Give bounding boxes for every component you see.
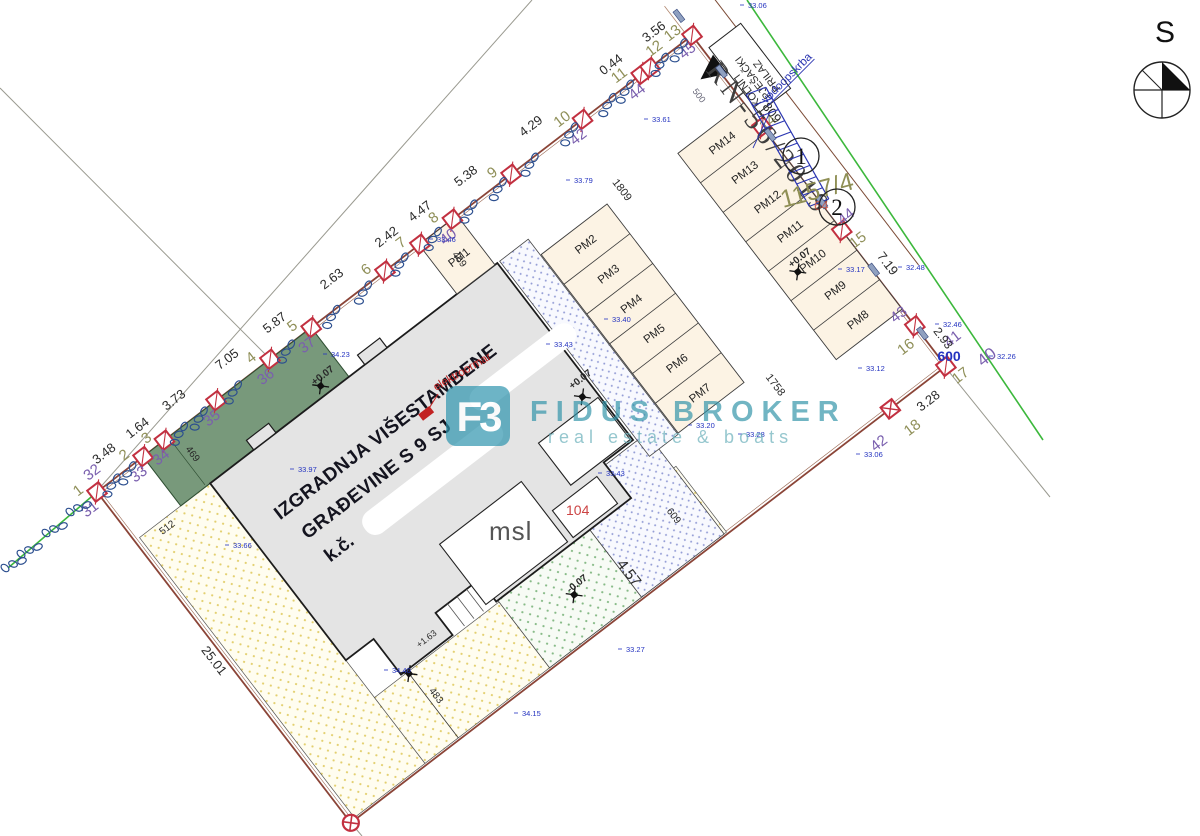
- dimension-label: 2.63: [317, 265, 346, 292]
- bush-symbol-icon: [17, 556, 28, 565]
- dimension-label: 3.28: [914, 387, 943, 414]
- neighbour-line: [946, 368, 1050, 497]
- dimension-label: 600: [937, 348, 961, 364]
- bush-symbol-icon: [33, 542, 44, 551]
- dimension-label: 3.73: [159, 386, 188, 413]
- elevation-spot: 33.61: [652, 115, 671, 124]
- old-parcel-number: 64: [814, 198, 828, 213]
- elevation-spot: 33.06: [748, 1, 767, 10]
- elevation-spot: 33.79: [574, 176, 593, 185]
- point-number-old: 2: [116, 446, 133, 465]
- point-number-old: 8: [425, 209, 442, 228]
- gully-mark: [673, 9, 685, 22]
- elevation-spot: 33.06: [864, 450, 883, 459]
- point-number-old: 7: [393, 234, 410, 253]
- elevation-spot: 33.12: [866, 364, 885, 373]
- neighbour-line: [0, 88, 270, 359]
- circled-point-1-label: 1: [795, 144, 807, 169]
- watermark: F3 FIDUS BROKER real estate & boats: [446, 386, 847, 447]
- north-compass: S: [1134, 16, 1190, 118]
- elevation-spot: 33.43: [606, 469, 625, 478]
- point-number-old: 9: [484, 164, 501, 183]
- elevation-spot: 33.97: [298, 465, 317, 474]
- elevation-spot: 32.26: [997, 352, 1016, 361]
- point-number-old: 3: [138, 429, 155, 448]
- elevation-spot: 33.40: [612, 315, 631, 324]
- point-number-old: 5: [284, 317, 301, 336]
- elevation-spot: 34.15: [522, 709, 541, 718]
- site-plan-document: PM2PM3PM4PM5PM6PM7PM14PM13PM12PM11PM10PM…: [0, 0, 1200, 836]
- watermark-line2: real estate & boats: [548, 427, 793, 447]
- point-number-old: 4: [243, 349, 260, 368]
- watermark-line1: FIDUS BROKER: [530, 396, 847, 428]
- elevation-spot: 34.40: [392, 666, 411, 675]
- elevation-spot: 33.46: [437, 235, 456, 244]
- compass-nw-line: [1142, 70, 1162, 90]
- site-plan-drawing: PM2PM3PM4PM5PM6PM7PM14PM13PM12PM11PM10PM…: [0, 0, 1200, 836]
- point-number-old: 18: [901, 416, 925, 440]
- elevation-spot: 34.23: [331, 350, 350, 359]
- compass-north-label: S: [1155, 16, 1175, 49]
- elevation-spot: 32.48: [906, 263, 925, 272]
- dimension-label: 5.38: [451, 162, 480, 189]
- point-number-old: 1: [70, 481, 87, 500]
- fb-logo-text: F3: [456, 393, 501, 440]
- circled-point-2-label: 2: [831, 195, 843, 220]
- elevation-spot: 33.27: [626, 645, 645, 654]
- dimension-label: 7.05: [212, 345, 241, 372]
- elevation-spot: 32.46: [943, 320, 962, 329]
- point-number-old: 6: [358, 260, 375, 279]
- elevation-spot: 33.17: [846, 265, 865, 274]
- elevation-spot: 33.66: [233, 541, 252, 550]
- bush-symbol-icon: [58, 521, 69, 530]
- neighbor-parcel-number: 104: [566, 502, 590, 518]
- point-number-new: 40: [973, 344, 1000, 371]
- room-label: msl: [489, 516, 532, 546]
- elevation-spot: 33.43: [554, 340, 573, 349]
- dimension-label: 4.29: [516, 112, 545, 139]
